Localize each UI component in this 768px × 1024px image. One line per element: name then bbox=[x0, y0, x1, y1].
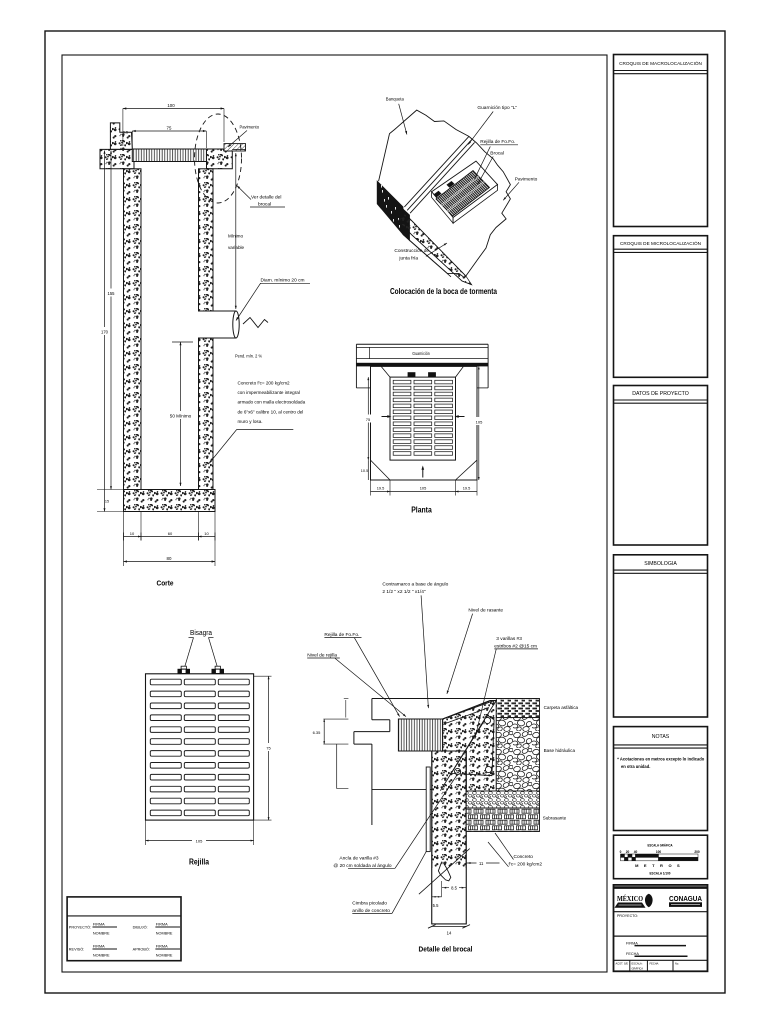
svg-text:FIRMA: FIRMA bbox=[93, 945, 105, 949]
svg-text:en otra unidad.: en otra unidad. bbox=[621, 764, 650, 769]
svg-text:con impermeabilizante integral: con impermeabilizante integral bbox=[238, 390, 300, 395]
svg-text:200: 200 bbox=[694, 850, 700, 854]
svg-text:3 varillas #3: 3 varillas #3 bbox=[496, 636, 522, 642]
svg-text:ACOT. S/E: ACOT. S/E bbox=[616, 962, 629, 966]
svg-text:Rejilla de Fo.Fo.: Rejilla de Fo.Fo. bbox=[480, 139, 515, 145]
svg-text:* Acotaciones en metros except: * Acotaciones en metros excepto lo indic… bbox=[617, 757, 704, 762]
svg-text:19.5: 19.5 bbox=[463, 486, 471, 491]
svg-text:CROQUIS DE MICROLOCALIZACIÓN: CROQUIS DE MICROLOCALIZACIÓN bbox=[620, 240, 701, 246]
svg-text:NOTAS: NOTAS bbox=[652, 734, 670, 740]
svg-text:FIRMA: FIRMA bbox=[93, 923, 105, 927]
svg-text:REVISÓ:: REVISÓ: bbox=[69, 947, 84, 952]
svg-text:NOMBRE: NOMBRE bbox=[156, 954, 173, 958]
svg-text:75: 75 bbox=[266, 746, 271, 751]
svg-text:100: 100 bbox=[656, 850, 662, 854]
svg-text:ESCALA 1/100: ESCALA 1/100 bbox=[650, 871, 672, 876]
svg-text:Detalle del brocal: Detalle del brocal bbox=[419, 945, 473, 954]
svg-text:FIRMA: FIRMA bbox=[626, 941, 638, 945]
svg-text:50 Mínimo: 50 Mínimo bbox=[170, 414, 192, 419]
svg-text:Cimbra picolado: Cimbra picolado bbox=[352, 900, 387, 906]
svg-text:GRÁFICA: GRÁFICA bbox=[632, 967, 644, 971]
svg-text:10: 10 bbox=[204, 531, 209, 536]
svg-text:FECHA: FECHA bbox=[626, 952, 639, 956]
svg-text:Pavimento: Pavimento bbox=[240, 125, 260, 130]
svg-text:6.35: 6.35 bbox=[313, 730, 322, 735]
svg-text:DIBUJÓ:: DIBUJÓ: bbox=[133, 925, 148, 930]
svg-text:SIMBOLOGIA: SIMBOLOGIA bbox=[644, 561, 677, 567]
svg-text:14: 14 bbox=[447, 931, 452, 936]
svg-text:variable: variable bbox=[228, 245, 245, 250]
svg-text:105: 105 bbox=[196, 839, 203, 844]
svg-text:170: 170 bbox=[101, 330, 109, 335]
svg-text:Concreto f'c= 200 kg/cm2: Concreto f'c= 200 kg/cm2 bbox=[238, 381, 291, 386]
svg-text:Rejilla: Rejilla bbox=[189, 858, 209, 867]
svg-text:105: 105 bbox=[420, 486, 427, 491]
svg-text:5.5: 5.5 bbox=[433, 903, 439, 908]
svg-text:Banqueta: Banqueta bbox=[386, 97, 404, 102]
svg-text:NOMBRE: NOMBRE bbox=[93, 932, 110, 936]
svg-text:Pend. mín. 2 %: Pend. mín. 2 % bbox=[235, 354, 262, 359]
svg-text:Carpeta asfáltica: Carpeta asfáltica bbox=[544, 705, 579, 710]
svg-text:PROYECTO:: PROYECTO: bbox=[617, 914, 638, 918]
svg-text:PROYECTÓ:: PROYECTÓ: bbox=[69, 925, 91, 930]
svg-text:DATOS DE PROYECTO: DATOS DE PROYECTO bbox=[632, 391, 689, 397]
svg-text:0: 0 bbox=[620, 850, 622, 854]
svg-text:FECHA:: FECHA: bbox=[650, 962, 660, 966]
svg-text:Contramarco a base de ángulo: Contramarco a base de ángulo bbox=[382, 582, 448, 588]
svg-text:8.5: 8.5 bbox=[451, 886, 457, 891]
svg-text:75: 75 bbox=[167, 125, 172, 130]
svg-text:Rejilla de Fo.Fo.: Rejilla de Fo.Fo. bbox=[324, 632, 359, 638]
svg-text:Construcción de: Construcción de bbox=[394, 248, 429, 254]
svg-text:40: 40 bbox=[634, 850, 638, 854]
svg-text:M E T R O S: M E T R O S bbox=[635, 863, 682, 868]
svg-text:FIRMA: FIRMA bbox=[156, 923, 168, 927]
svg-text:Guarnición tipo "L": Guarnición tipo "L" bbox=[477, 105, 517, 111]
svg-text:Concreto: Concreto bbox=[514, 854, 534, 860]
svg-text:Pavimento: Pavimento bbox=[515, 176, 538, 182]
svg-text:11: 11 bbox=[479, 861, 484, 866]
svg-text:Colocación de la boca de torme: Colocación de la boca de tormenta bbox=[390, 287, 498, 296]
svg-text:anillo de concreto: anillo de concreto bbox=[352, 908, 390, 914]
svg-text:75: 75 bbox=[366, 417, 371, 422]
svg-text:10: 10 bbox=[130, 531, 135, 536]
svg-text:ESCALA GRÁFICA: ESCALA GRÁFICA bbox=[648, 843, 673, 848]
svg-text:Corte: Corte bbox=[157, 579, 174, 588]
svg-text:CONAGUA: CONAGUA bbox=[669, 894, 702, 903]
svg-text:60: 60 bbox=[168, 531, 173, 536]
svg-text:f'c= 200 kg/cm2: f'c= 200 kg/cm2 bbox=[509, 862, 543, 868]
svg-text:FIRMA: FIRMA bbox=[156, 945, 168, 949]
svg-text:Brocal: Brocal bbox=[490, 151, 504, 157]
svg-text:Planta: Planta bbox=[411, 506, 432, 515]
svg-text:APROBÓ:: APROBÓ: bbox=[133, 947, 150, 952]
svg-text:brocal: brocal bbox=[258, 202, 271, 208]
svg-text:105: 105 bbox=[476, 420, 483, 425]
svg-text:NOMBRE: NOMBRE bbox=[93, 954, 110, 958]
svg-text:15: 15 bbox=[105, 500, 109, 504]
svg-text:19.5: 19.5 bbox=[377, 486, 385, 491]
svg-text:155: 155 bbox=[108, 291, 116, 296]
svg-text:CROQUIS DE MACROLOCALIZACIÓN: CROQUIS DE MACROLOCALIZACIÓN bbox=[619, 60, 702, 66]
svg-text:10.5: 10.5 bbox=[361, 469, 368, 473]
svg-text:Ver detalle del: Ver detalle del bbox=[251, 195, 281, 201]
svg-text:Guarnición: Guarnición bbox=[412, 351, 430, 356]
svg-text:No.: No. bbox=[675, 962, 679, 966]
svg-text:armado con malla electrosoldad: armado con malla electrosoldada bbox=[238, 400, 306, 405]
svg-text:Subrasante: Subrasante bbox=[543, 815, 567, 820]
svg-text:ESCALA:: ESCALA: bbox=[632, 962, 643, 966]
svg-text:MÉXICO: MÉXICO bbox=[617, 893, 643, 903]
svg-text:Ancla de varilla #3: Ancla de varilla #3 bbox=[339, 855, 379, 861]
svg-text:Base hidráulica: Base hidráulica bbox=[544, 748, 576, 753]
svg-text:Bisagra: Bisagra bbox=[190, 630, 212, 637]
svg-text:Diam. mínimo 20 cm: Diam. mínimo 20 cm bbox=[261, 278, 305, 284]
svg-text:Nivel de rejilla: Nivel de rejilla bbox=[307, 652, 337, 658]
svg-text:100: 100 bbox=[167, 103, 175, 108]
svg-text:muro y losa.: muro y losa. bbox=[238, 419, 263, 424]
svg-text:2 1/2 " x2 1/2 " x1/4": 2 1/2 " x2 1/2 " x1/4" bbox=[382, 589, 426, 595]
svg-text:junta fría: junta fría bbox=[398, 256, 418, 262]
svg-text:20: 20 bbox=[626, 850, 630, 854]
svg-text:80: 80 bbox=[167, 556, 172, 561]
svg-text:estribos #2 @15 cm: estribos #2 @15 cm bbox=[494, 643, 537, 649]
svg-text:@ 20 cm soldada al ángulo: @ 20 cm soldada al ángulo bbox=[333, 863, 392, 869]
svg-text:de 6"x6" calibre 10, al centro: de 6"x6" calibre 10, al centro del bbox=[238, 409, 304, 414]
svg-text:NOMBRE: NOMBRE bbox=[156, 932, 173, 936]
svg-text:Nivel de rasante: Nivel de rasante bbox=[468, 607, 503, 613]
